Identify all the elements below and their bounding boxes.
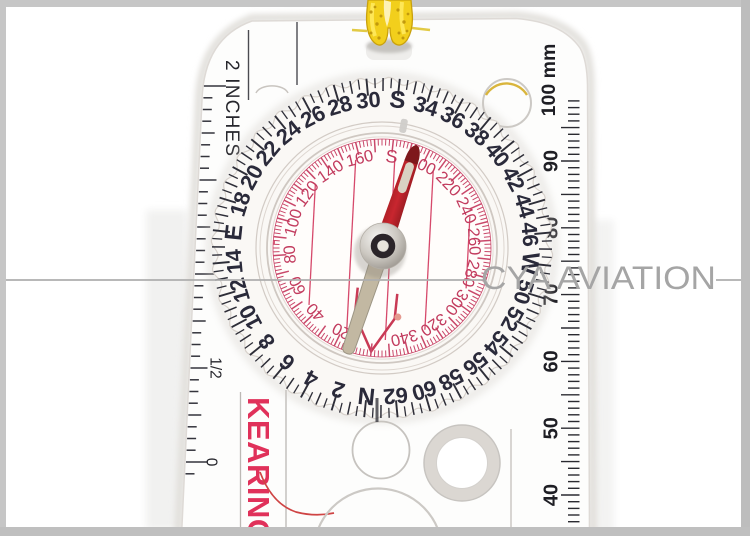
svg-text:80: 80 — [281, 245, 300, 265]
svg-text:30: 30 — [355, 87, 382, 114]
svg-text:1/2: 1/2 — [207, 357, 224, 379]
svg-text:62: 62 — [382, 382, 409, 409]
svg-text:90: 90 — [541, 150, 563, 172]
svg-text:14: 14 — [220, 248, 247, 275]
svg-text:60: 60 — [541, 350, 563, 372]
svg-text:N: N — [356, 381, 376, 410]
svg-text:46: 46 — [516, 221, 543, 248]
svg-text:0: 0 — [203, 458, 220, 467]
svg-text:2 INCHES: 2 INCHES — [221, 60, 242, 157]
svg-text:100 mm: 100 mm — [538, 44, 560, 117]
svg-text:E: E — [220, 223, 249, 242]
svg-text:S: S — [385, 146, 399, 167]
svg-text:CYA AVIATION: CYA AVIATION — [481, 260, 716, 296]
svg-text:260: 260 — [464, 227, 484, 256]
svg-text:50: 50 — [541, 417, 563, 439]
svg-text:S: S — [388, 86, 407, 115]
svg-text:KEARING: KEARING — [241, 397, 276, 536]
svg-text:40: 40 — [541, 484, 563, 506]
